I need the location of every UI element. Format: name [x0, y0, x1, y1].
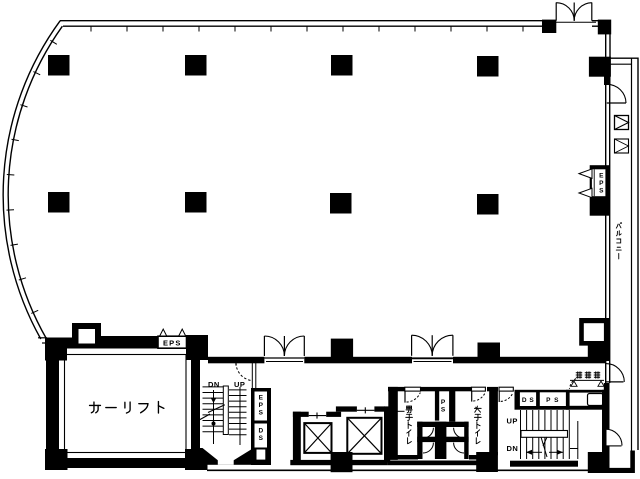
svg-text:P: P [441, 399, 446, 406]
svg-text:S: S [259, 410, 264, 417]
svg-text:S: S [259, 435, 264, 442]
svg-text:EPS: EPS [163, 339, 182, 348]
svg-text:D S: D S [522, 397, 535, 404]
svg-text:DN: DN [208, 380, 220, 389]
svg-text:S: S [599, 188, 604, 195]
svg-text:E: E [259, 395, 264, 402]
svg-text:P: P [259, 402, 264, 409]
svg-text:UP: UP [507, 417, 518, 426]
svg-text:DN: DN [507, 444, 519, 453]
svg-text:P: P [599, 180, 604, 187]
svg-text:E: E [599, 173, 604, 180]
svg-text:P S: P S [546, 397, 559, 404]
svg-text:D: D [258, 428, 263, 435]
svg-text:S: S [441, 407, 446, 414]
